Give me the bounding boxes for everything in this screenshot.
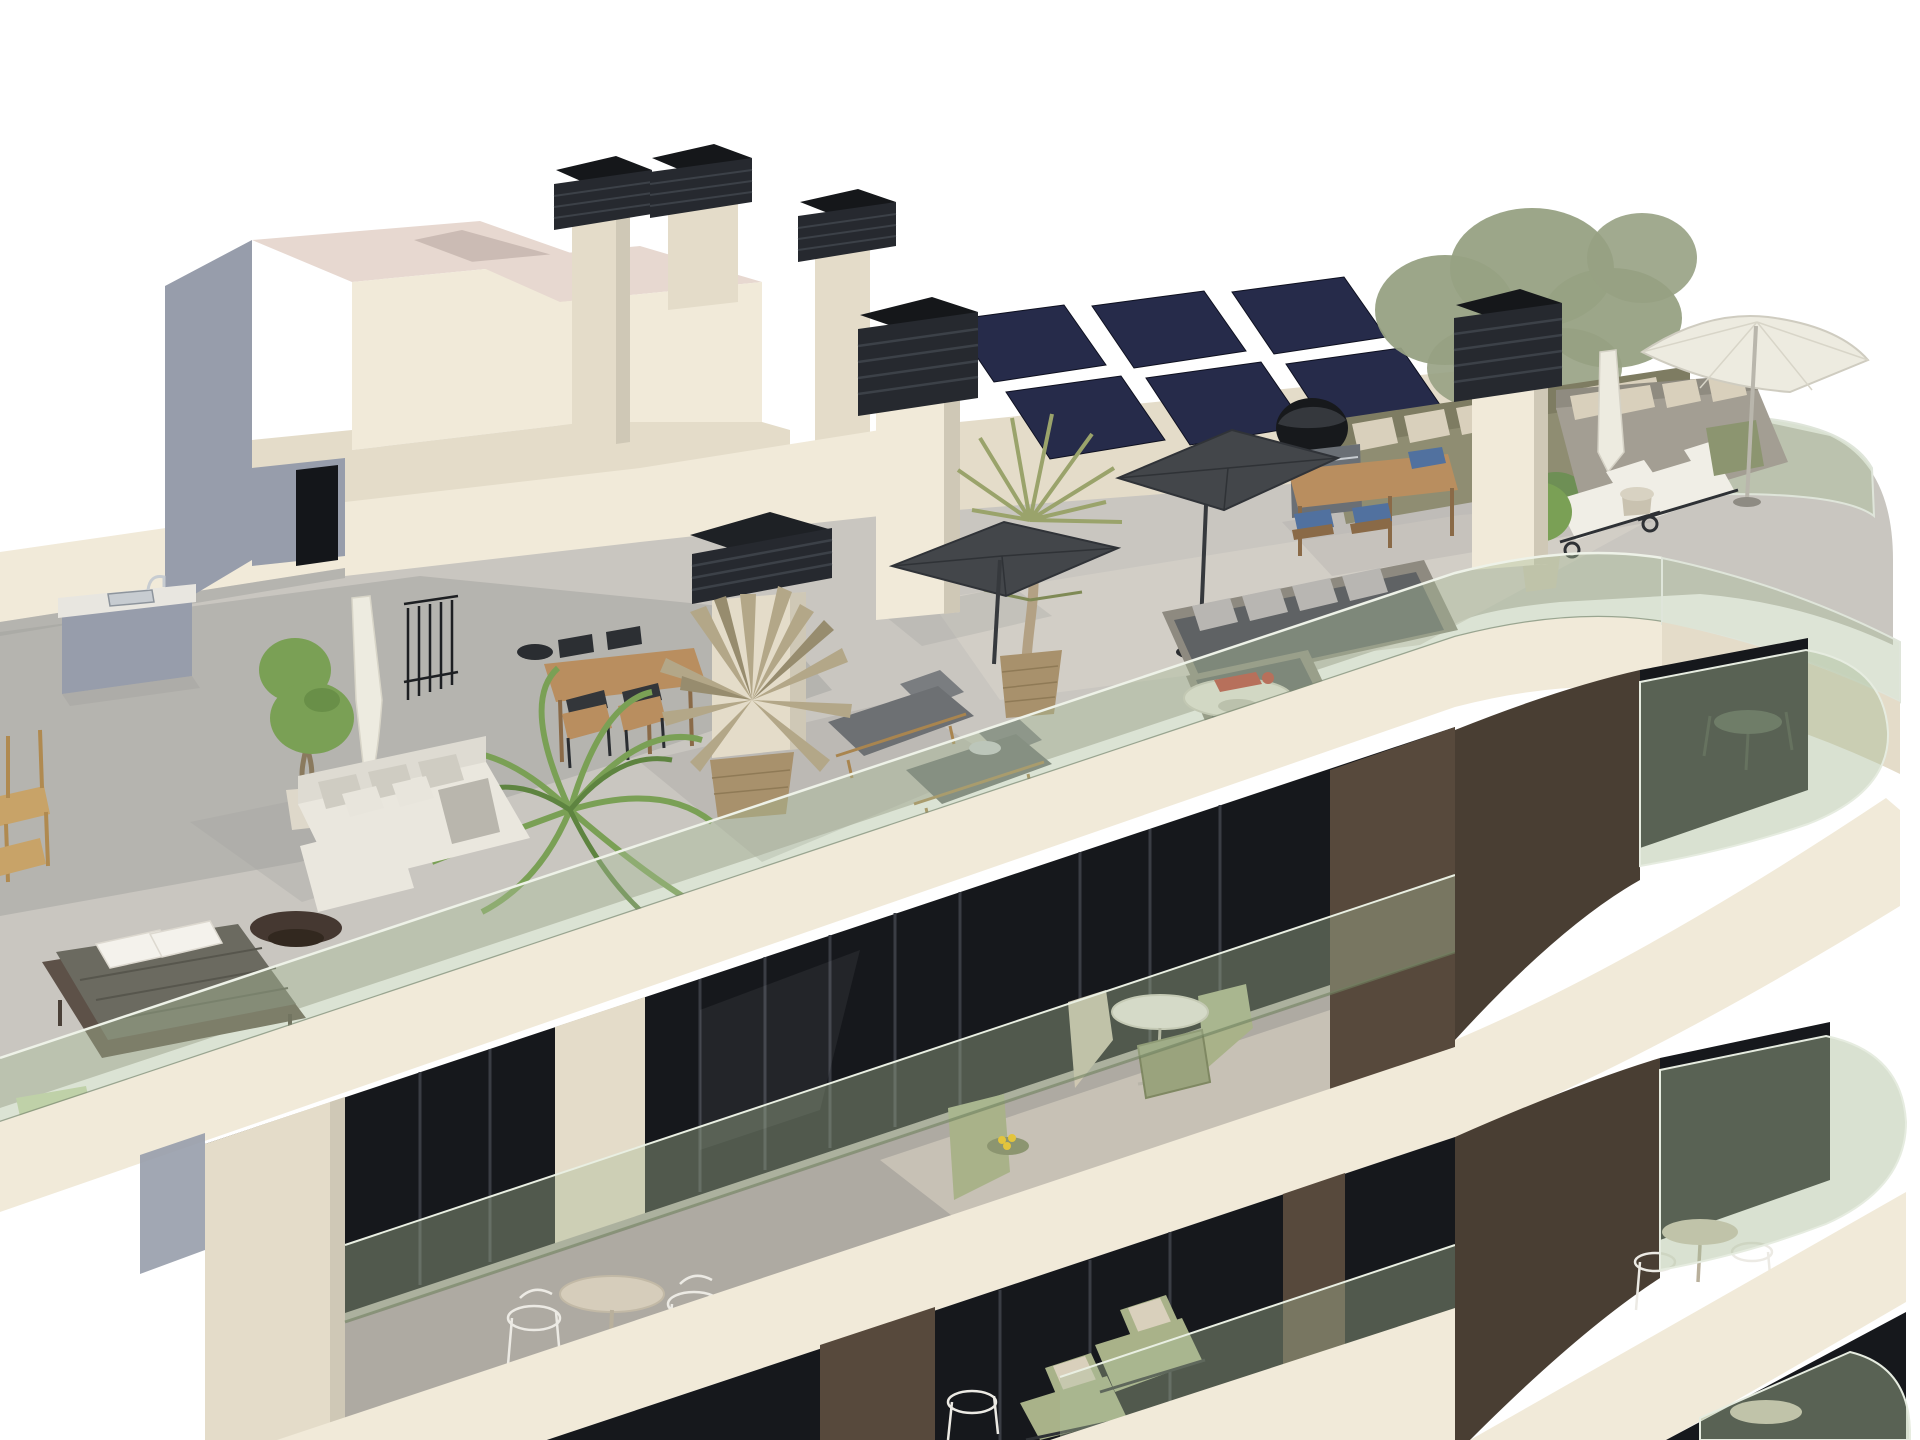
- corner-column: [205, 1097, 345, 1440]
- side-stool: [1620, 487, 1654, 516]
- scene-svg: [0, 0, 1920, 1440]
- jog-wall-shaded: [140, 1133, 205, 1274]
- penthouse-door: [296, 465, 338, 566]
- wall-sconce-icon: [517, 644, 553, 660]
- render-canvas: [0, 0, 1920, 1440]
- outdoor-kitchen-counter: [58, 577, 200, 706]
- table-beige-left: [560, 1276, 664, 1312]
- armchair-olive: [1706, 420, 1764, 476]
